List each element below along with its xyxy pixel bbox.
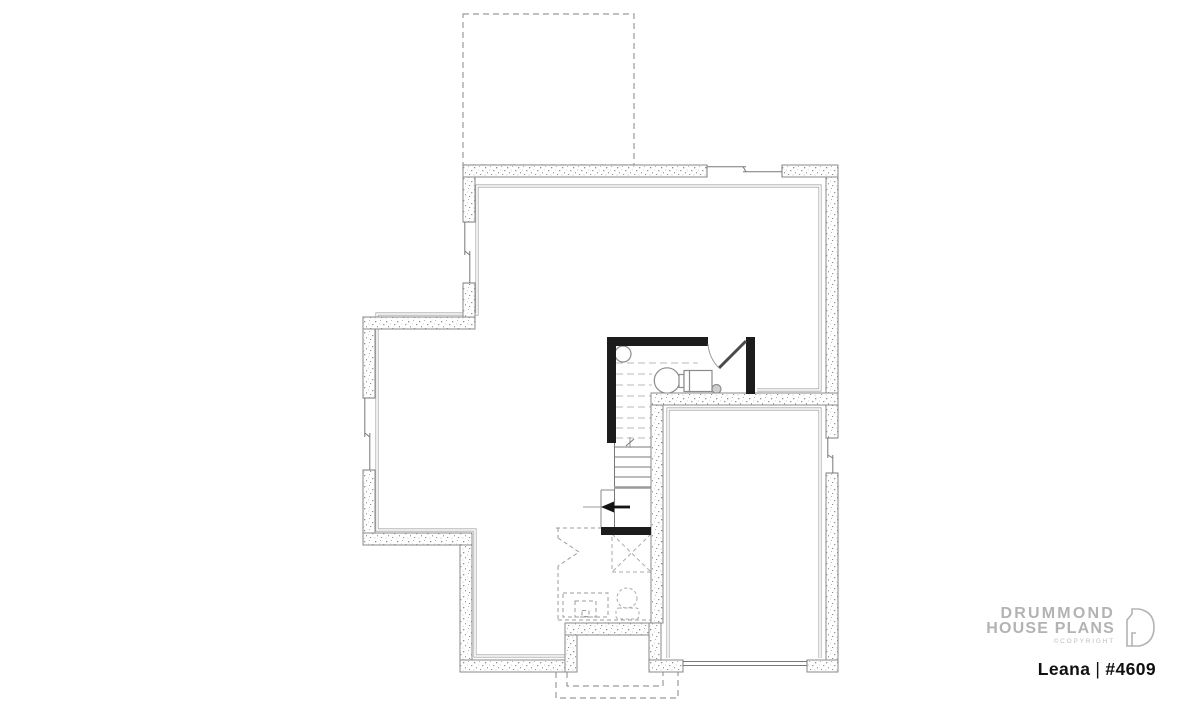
mechanical-room-door [708, 341, 746, 368]
brand-line2: HOUSE PLANS [986, 621, 1115, 636]
heater-furnace-connector [679, 375, 684, 388]
wall-left-stub-b [463, 283, 475, 317]
wall-garage-top [651, 393, 838, 405]
wall-garage-left [651, 405, 663, 623]
window-garage-right-icon [826, 438, 838, 473]
brand-copyright: ©COPYRIGHT [986, 637, 1115, 647]
wall-left2-upper [363, 329, 375, 398]
window-top-icon [707, 165, 782, 177]
window-left-upper-icon [463, 222, 475, 283]
wall-top-left [463, 165, 707, 177]
wall-bump-corner [649, 660, 683, 672]
wall-left-stub-a [463, 177, 475, 222]
floor-drain-icon [615, 346, 631, 362]
vanity-sink-icon [563, 593, 608, 617]
wall-bump-right [649, 623, 661, 660]
plan-name: Leana [1038, 659, 1091, 679]
drummond-d-icon [1122, 606, 1156, 648]
wall-left3 [460, 545, 472, 672]
future-bathroom [556, 528, 651, 620]
plan-title: Leana|#4609 [1038, 659, 1156, 680]
wall-garage-bottom-corner [807, 660, 838, 672]
wall-right-lower [826, 473, 838, 672]
staircase [583, 437, 651, 572]
garage-above-dashed-outline [463, 14, 634, 165]
bathroom-door-swing [558, 538, 579, 566]
garage-finish-line [668, 409, 820, 658]
wall-top-right [782, 165, 838, 177]
foundation-walls [363, 165, 838, 672]
wall-bump-top [565, 623, 661, 635]
plan-title-separator: | [1095, 659, 1100, 679]
furnace-icon [684, 371, 712, 392]
mechanical-fixtures [615, 346, 721, 394]
window-left-lower-icon [363, 398, 375, 470]
garage-door-opening [683, 660, 807, 667]
toilet-icon [616, 588, 639, 619]
wall-bottom-left [460, 660, 577, 672]
landing-wall [601, 527, 651, 535]
interior-finish-lines [377, 186, 820, 658]
porch-steps-dashed-outline [556, 672, 678, 698]
plan-number: #4609 [1105, 659, 1156, 679]
pipe-icon [712, 385, 721, 394]
stair-direction-arrow [583, 437, 634, 513]
windows [363, 165, 838, 667]
wall-jog-horizontal [363, 317, 475, 329]
wall-step-horizontal [363, 533, 472, 545]
brand-line1: DRUMMOND [986, 606, 1115, 621]
under-stair-dashed-box [612, 534, 651, 572]
mechanical-room-walls [601, 337, 755, 535]
drummond-logo: DRUMMOND HOUSE PLANS ©COPYRIGHT [986, 606, 1156, 648]
water-heater-icon [654, 368, 679, 393]
